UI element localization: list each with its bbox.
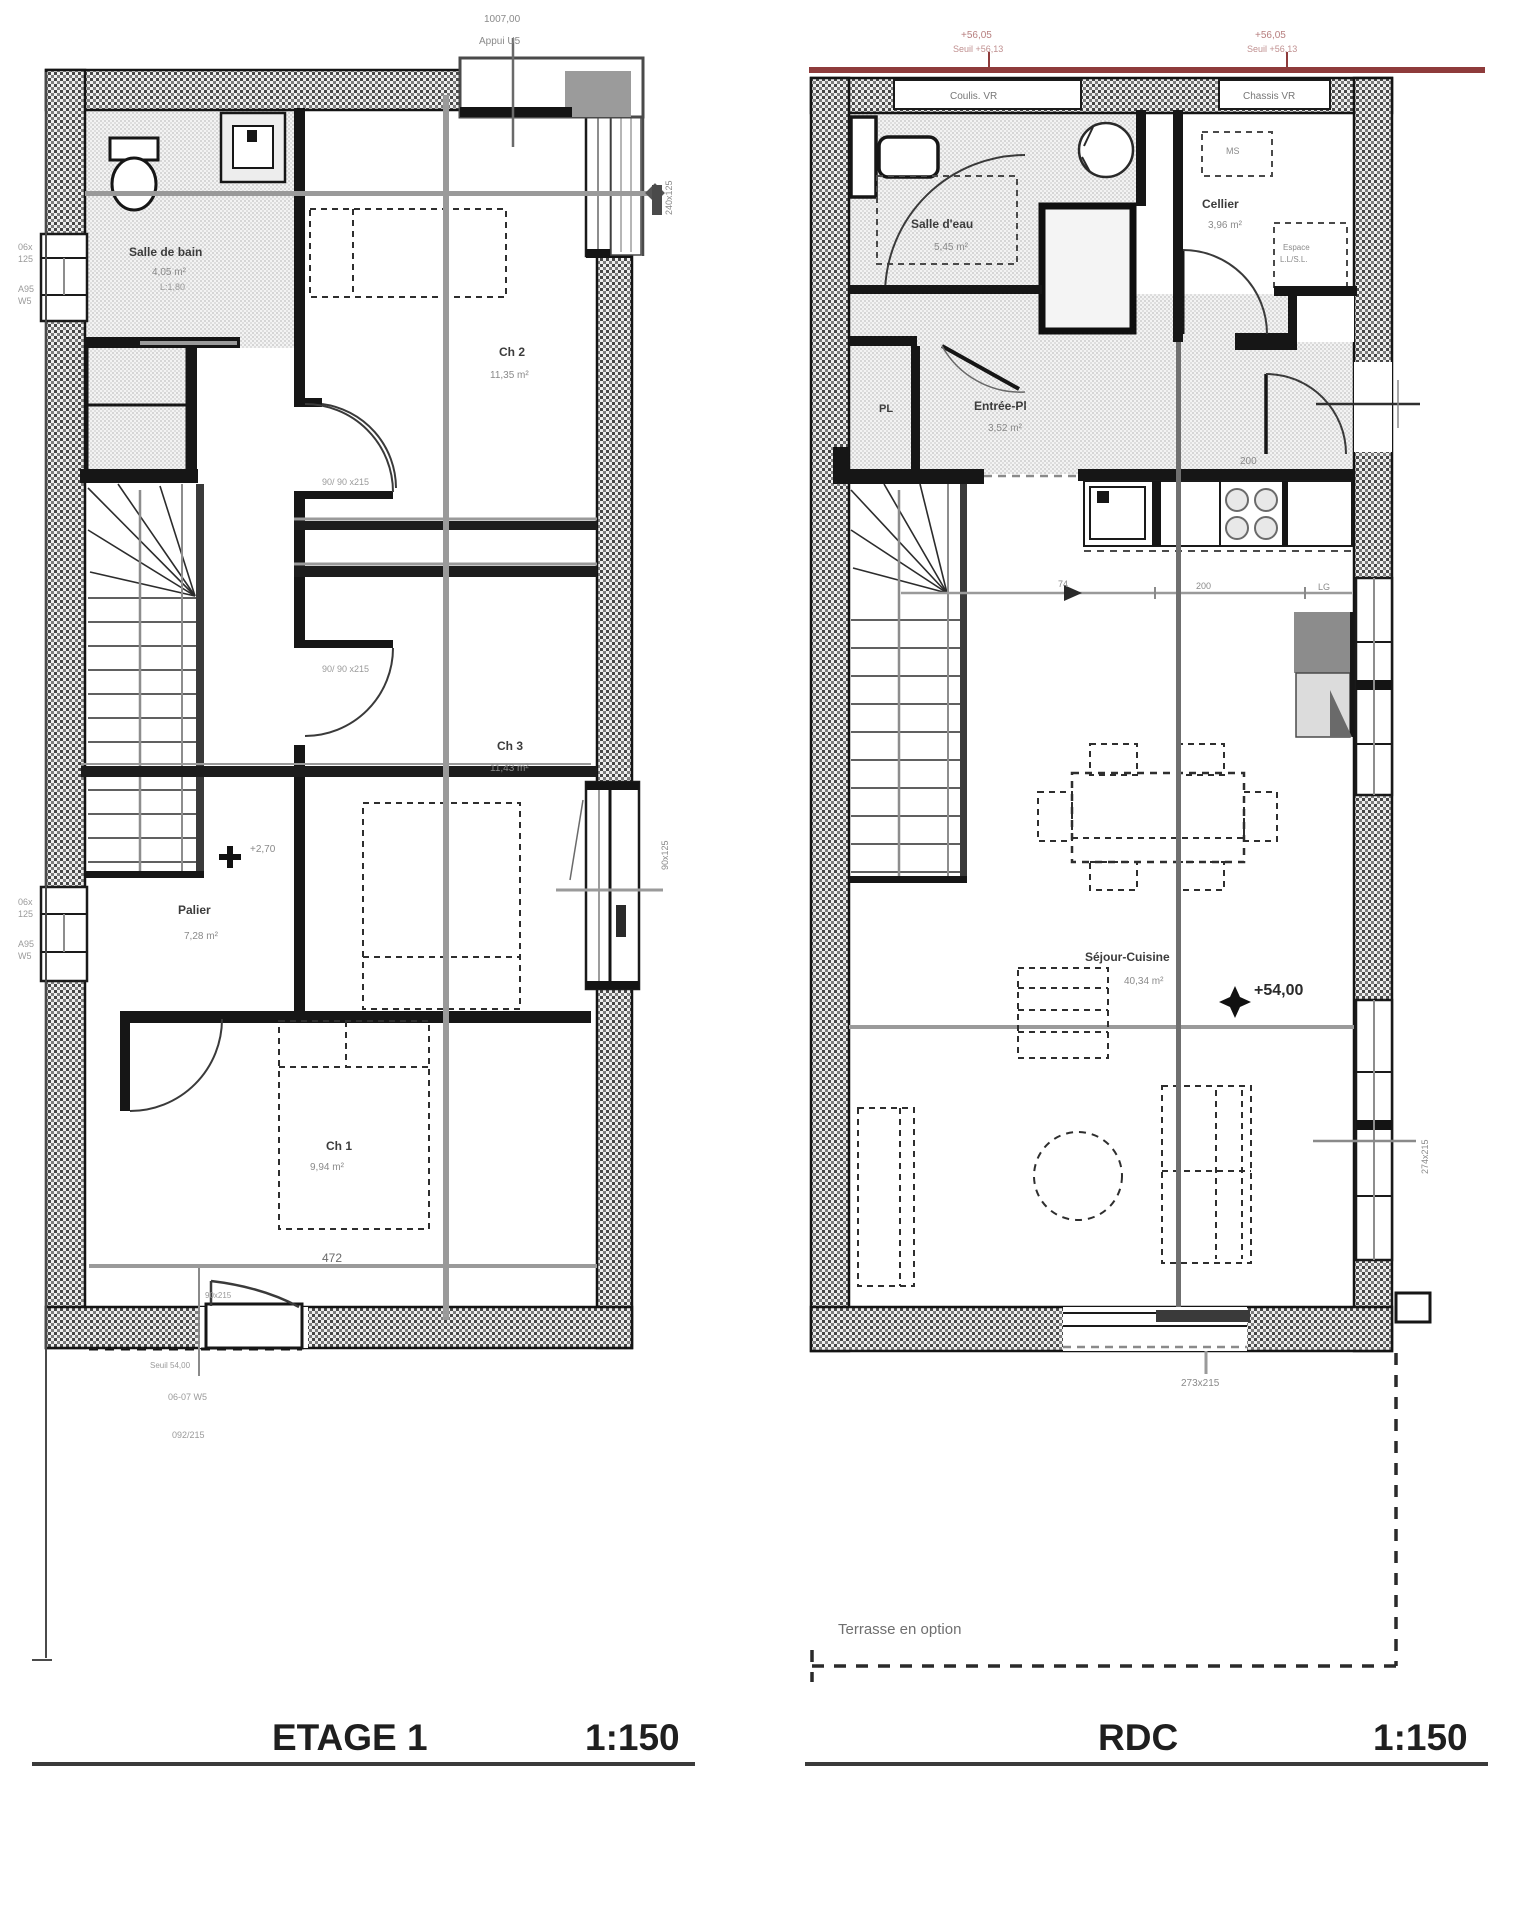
svg-text:240x125: 240x125 [664, 180, 674, 215]
svg-text:9,94 m²: 9,94 m² [310, 1162, 345, 1173]
svg-text:L:1,80: L:1,80 [160, 282, 185, 292]
svg-text:+56,05: +56,05 [961, 30, 992, 41]
svg-text:5,45 m²: 5,45 m² [934, 242, 969, 253]
svg-text:06x: 06x [18, 897, 33, 907]
svg-text:Appui U5: Appui U5 [479, 36, 521, 47]
svg-text:Ch 2: Ch 2 [499, 345, 525, 359]
svg-text:+2,70: +2,70 [250, 844, 276, 855]
svg-text:125: 125 [18, 909, 33, 919]
svg-text:Chassis VR: Chassis VR [1243, 91, 1295, 102]
svg-text:3,96 m²: 3,96 m² [1208, 220, 1243, 231]
svg-text:Ch 1: Ch 1 [326, 1139, 352, 1153]
svg-text:092/215: 092/215 [172, 1430, 205, 1440]
svg-text:Seuil +56,13: Seuil +56,13 [1247, 44, 1297, 54]
svg-text:Ch 3: Ch 3 [497, 739, 523, 753]
svg-text:200: 200 [1196, 581, 1211, 591]
svg-text:Coulis. VR: Coulis. VR [950, 91, 997, 102]
svg-text:Salle de bain: Salle de bain [129, 245, 202, 259]
svg-text:W5: W5 [18, 296, 32, 306]
svg-text:40,34 m²: 40,34 m² [1124, 976, 1164, 987]
svg-text:LG: LG [1318, 582, 1330, 592]
svg-text:L.L/S.L.: L.L/S.L. [1280, 255, 1308, 264]
svg-text:1007,00: 1007,00 [484, 14, 521, 25]
svg-text:Espace: Espace [1283, 243, 1310, 252]
svg-text:+56,05: +56,05 [1255, 30, 1286, 41]
svg-text:A95: A95 [18, 284, 34, 294]
svg-text:ETAGE 1: ETAGE 1 [272, 1717, 428, 1758]
svg-text:RDC: RDC [1098, 1717, 1178, 1758]
svg-text:06x: 06x [18, 242, 33, 252]
svg-text:W5: W5 [18, 951, 32, 961]
svg-text:Terrasse en option: Terrasse en option [838, 1621, 961, 1638]
svg-text:Salle d'eau: Salle d'eau [911, 217, 973, 231]
svg-text:90/ 90 x215: 90/ 90 x215 [322, 664, 369, 674]
svg-text:MS: MS [1226, 146, 1240, 156]
svg-text:74: 74 [1058, 579, 1068, 589]
svg-text:Entrée-Pl: Entrée-Pl [974, 399, 1027, 413]
svg-text:11,35 m²: 11,35 m² [490, 370, 529, 381]
svg-text:7,28 m²: 7,28 m² [184, 931, 219, 942]
svg-text:A95: A95 [18, 939, 34, 949]
svg-text:274x215: 274x215 [1420, 1139, 1430, 1174]
svg-text:+54,00: +54,00 [1254, 982, 1303, 999]
svg-text:Séjour-Cuisine: Séjour-Cuisine [1085, 950, 1170, 964]
svg-text:Palier: Palier [178, 903, 211, 917]
svg-text:PL: PL [879, 403, 893, 415]
svg-text:06-07 W5: 06-07 W5 [168, 1392, 207, 1402]
svg-text:90x125: 90x125 [660, 840, 670, 870]
svg-text:472: 472 [322, 1251, 342, 1265]
svg-text:11,43 m²: 11,43 m² [490, 763, 529, 774]
svg-text:273x215: 273x215 [1181, 1378, 1220, 1389]
svg-text:4,05 m²: 4,05 m² [152, 267, 187, 278]
svg-text:90x215: 90x215 [205, 1291, 232, 1300]
svg-text:90/ 90 x215: 90/ 90 x215 [322, 477, 369, 487]
svg-text:125: 125 [18, 254, 33, 264]
svg-text:Seuil +56,13: Seuil +56,13 [953, 44, 1003, 54]
svg-text:1:150: 1:150 [1373, 1717, 1468, 1758]
svg-text:Seuil 54,00: Seuil 54,00 [150, 1361, 191, 1370]
svg-text:1:150: 1:150 [585, 1717, 680, 1758]
svg-text:200: 200 [1240, 456, 1257, 467]
svg-text:3,52 m²: 3,52 m² [988, 423, 1023, 434]
svg-text:Cellier: Cellier [1202, 197, 1239, 211]
